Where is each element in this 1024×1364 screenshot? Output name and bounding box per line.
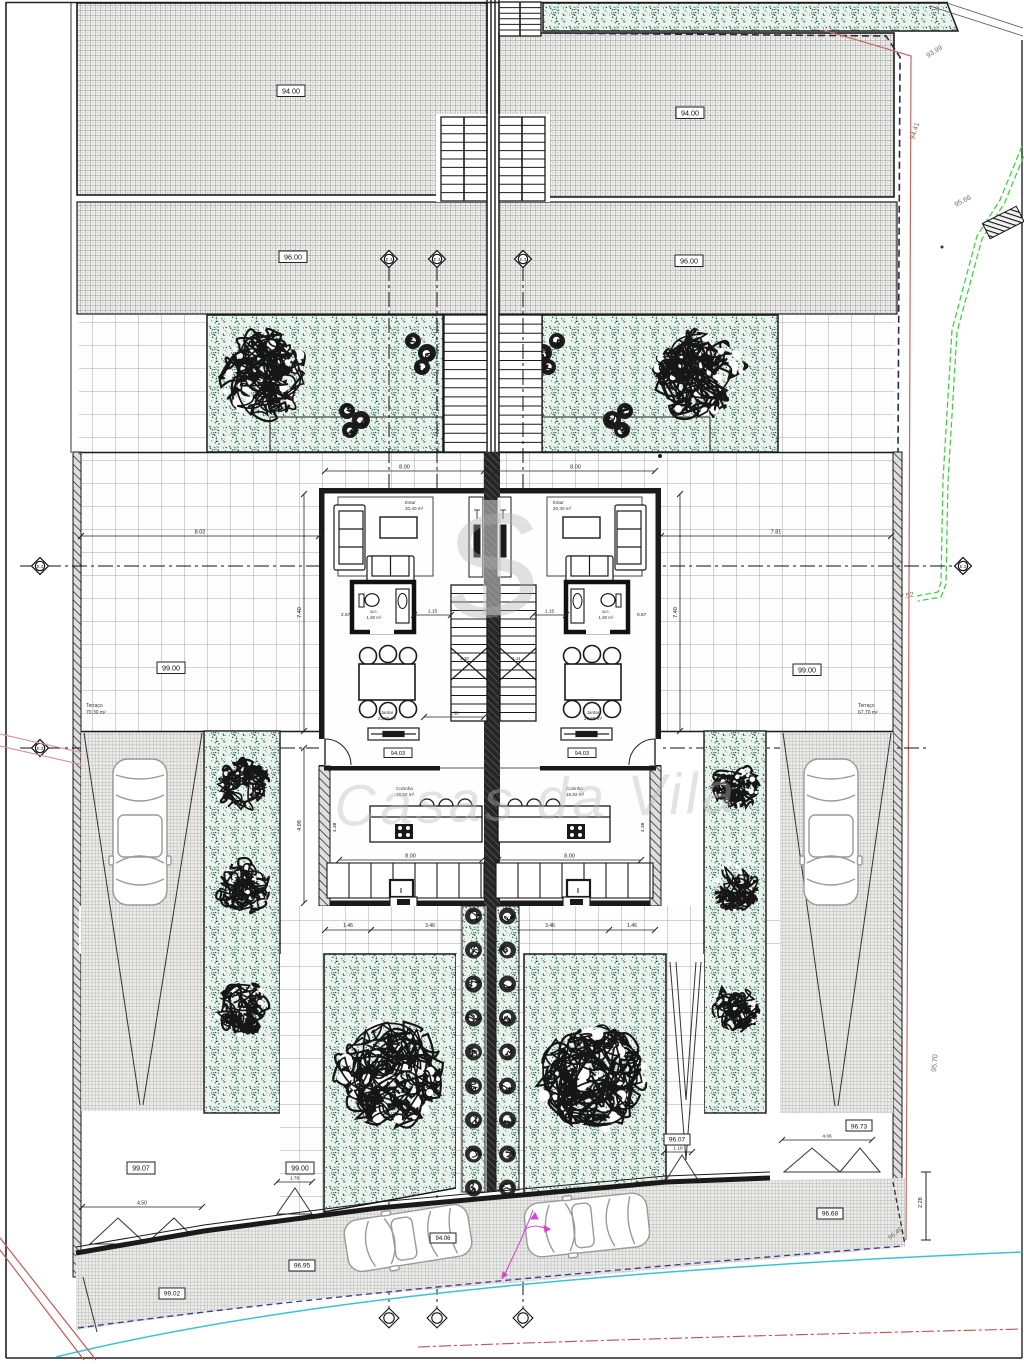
svg-text:1,90 m²: 1,90 m² [367, 615, 382, 620]
svg-text:1.30: 1.30 [449, 711, 459, 717]
svg-text:1.78: 1.78 [290, 1176, 300, 1182]
svg-text:Jantar: Jantar [587, 710, 600, 715]
svg-text:8.00: 8.00 [564, 854, 575, 860]
svg-text:8.00: 8.00 [405, 854, 416, 860]
svg-text:20,40 m²: 20,40 m² [553, 506, 572, 511]
svg-text:w.c.: w.c. [602, 609, 610, 614]
svg-text:7.40: 7.40 [297, 607, 303, 618]
svg-text:99.02: 99.02 [164, 1290, 181, 1297]
svg-text:96.07: 96.07 [669, 1136, 686, 1143]
svg-text:99.07: 99.07 [132, 1166, 150, 1173]
svg-text:E.3: E.3 [37, 746, 44, 751]
svg-text:94.06: 94.06 [435, 1236, 451, 1242]
svg-text:99.00: 99.00 [162, 664, 180, 673]
svg-text:1.46: 1.46 [343, 923, 353, 929]
svg-text:96.00: 96.00 [284, 253, 302, 262]
svg-text:96.95: 96.95 [294, 1262, 311, 1269]
svg-text:67,70 m²: 67,70 m² [858, 710, 878, 716]
svg-text:3.46: 3.46 [425, 923, 435, 929]
svg-text:2.67: 2.67 [341, 612, 351, 618]
svg-text:94.00: 94.00 [681, 109, 699, 118]
svg-text:E.3: E.3 [960, 564, 967, 569]
svg-text:94.00: 94.00 [282, 87, 300, 96]
svg-text:E.3: E.3 [434, 257, 441, 262]
svg-text:23,60 m²: 23,60 m² [378, 716, 397, 721]
svg-text:99.00: 99.00 [798, 666, 816, 675]
svg-text:96.68: 96.68 [822, 1210, 839, 1217]
svg-text:0.67: 0.67 [637, 612, 647, 618]
svg-text:20,40 m²: 20,40 m² [405, 506, 424, 511]
svg-text:1.46: 1.46 [627, 923, 637, 929]
svg-text:70,30 m²: 70,30 m² [86, 710, 106, 716]
svg-text:w.c.: w.c. [370, 609, 378, 614]
svg-text:1.18: 1.18 [673, 1146, 683, 1152]
svg-text:7.81: 7.81 [771, 530, 782, 536]
svg-text:7.40: 7.40 [673, 607, 679, 618]
svg-text:4.98: 4.98 [297, 820, 303, 831]
svg-text:99.00: 99.00 [291, 1166, 309, 1173]
svg-text:4.50: 4.50 [137, 1201, 147, 1207]
svg-text:E.3: E.3 [520, 257, 527, 262]
svg-text:8.00: 8.00 [399, 465, 410, 471]
svg-text:8.02: 8.02 [195, 530, 206, 536]
svg-text:E.3: E.3 [386, 257, 393, 262]
svg-text:96.73: 96.73 [851, 1123, 868, 1130]
svg-text:3.46: 3.46 [545, 923, 555, 929]
svg-text:1.15: 1.15 [428, 609, 438, 615]
svg-text:1.11: 1.11 [512, 656, 521, 661]
svg-text:23,60 m²: 23,60 m² [584, 716, 603, 721]
svg-text:8.00: 8.00 [570, 465, 581, 471]
svg-text:1.10: 1.10 [460, 656, 469, 661]
svg-text:1,90 m²: 1,90 m² [599, 615, 614, 620]
svg-text:Terraço: Terraço [86, 703, 103, 709]
svg-text:94.03: 94.03 [391, 751, 406, 757]
svg-text:E.3: E.3 [37, 564, 44, 569]
svg-text:Estar: Estar [553, 500, 564, 505]
svg-text:Jantar: Jantar [381, 710, 394, 715]
svg-text:2.28: 2.28 [918, 1197, 924, 1208]
svg-text:Terraço: Terraço [858, 703, 875, 709]
svg-text:4.06: 4.06 [822, 1134, 832, 1140]
svg-text:96.00: 96.00 [680, 257, 698, 266]
svg-text:Estar: Estar [405, 500, 416, 505]
svg-text:94.03: 94.03 [575, 751, 590, 757]
